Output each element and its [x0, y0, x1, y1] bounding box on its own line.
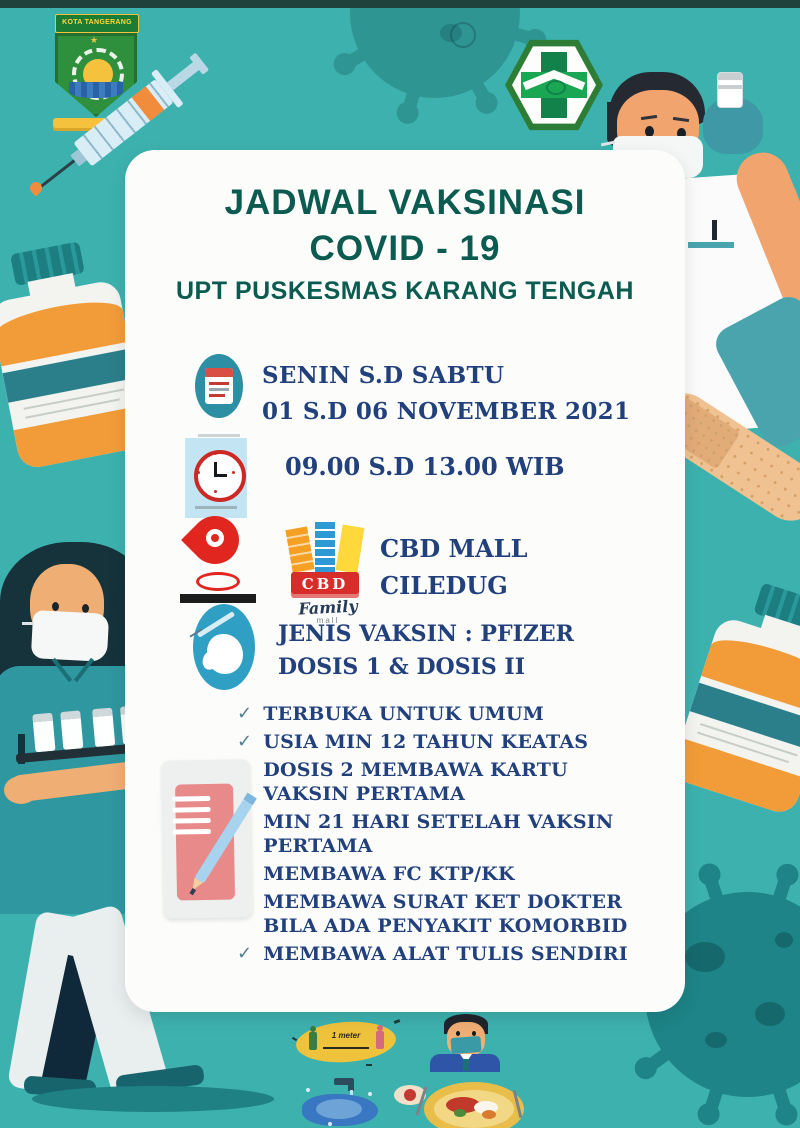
vaccine-doses: DOSIS 1 & DOSIS II [278, 651, 574, 684]
clipboard-line [172, 807, 210, 813]
food-item [482, 1110, 496, 1119]
requirement-text: MIN 21 HARI SETELAH VAKSIN PERTAMA [263, 810, 629, 858]
schedule-days: SENIN S.D SABTU [262, 358, 630, 394]
clipboard-line [173, 818, 211, 824]
check-icon: ✓ [237, 730, 252, 754]
clipboard-line [172, 796, 210, 802]
sauce [404, 1089, 416, 1101]
kota-logo-label: KOTA TANGERANG [55, 14, 139, 33]
requirements-list: ✓ TERBUKA UNTUK UMUM ✓ USIA MIN 12 TAHUN… [237, 702, 629, 970]
schedule-dates: 01 S.D 06 NOVEMBER 2021 [262, 394, 630, 430]
calendar-header [205, 368, 233, 377]
list-item: ✓ MEMBAWA ALAT TULIS SENDIRI [237, 942, 629, 966]
schedule-text: SENIN S.D SABTU 01 S.D 06 NOVEMBER 2021 [262, 358, 630, 430]
cbd-mall-logo: CBD Family mall [285, 520, 371, 628]
pin-base-ring [196, 572, 240, 591]
list-item: ✓ DOSIS 2 MEMBAWA KARTU VAKSIN PERTAMA [237, 758, 629, 806]
list-item: ✓ TERBUKA UNTUK UMUM [237, 702, 629, 726]
clipboard-line [173, 829, 211, 835]
tray-vial [32, 713, 55, 753]
man-tie [463, 1059, 470, 1071]
distance-1-meter-icon: 1 meter [296, 1018, 396, 1066]
requirement-text: USIA MIN 12 TAHUN KEATAS [263, 730, 588, 754]
man-eye [456, 1031, 460, 1036]
calendar-grid [209, 382, 229, 385]
vaccine-vial [717, 72, 743, 108]
vaccine-text: JENIS VAKSIN : PFIZER DOSIS 1 & DOSIS II [278, 618, 574, 684]
clock-caption [195, 506, 237, 509]
requirement-text: MEMBAWA SURAT KET DOKTER BILA ADA PENYAK… [263, 890, 629, 938]
clock-icon [185, 438, 247, 518]
location-name: CBD MALL [380, 530, 528, 567]
nurse-face-mask [31, 610, 109, 662]
title-line-2: COVID - 19 [125, 226, 685, 272]
pocket-pen [712, 220, 717, 240]
floor-shadow [32, 1086, 274, 1112]
center-ring [546, 80, 566, 95]
syringe-glove-icon [193, 604, 255, 690]
cbd-book-orange [285, 526, 314, 573]
location-text: CBD MALL CILEDUG [380, 530, 528, 604]
top-border-strip [0, 0, 800, 8]
check-icon: ✓ [237, 942, 252, 966]
mini-syringe [197, 611, 235, 637]
clock-hand [214, 474, 227, 477]
cbd-book-yellow [336, 525, 365, 574]
tray-vial [60, 710, 83, 750]
man-eye [472, 1031, 476, 1036]
person-figure [376, 1031, 384, 1049]
distance-arrow [323, 1047, 369, 1049]
list-item: ✓ MEMBAWA FC KTP/KK [237, 862, 629, 886]
requirement-text: MEMBAWA FC KTP/KK [263, 862, 514, 886]
hands-highlight [316, 1099, 362, 1119]
checklist-clipboard-icon [162, 759, 253, 919]
calendar-grid [209, 394, 225, 397]
nurse-eye [82, 604, 89, 613]
poster-title: JADWAL VAKSINASI COVID - 19 UPT PUSKESMA… [125, 180, 685, 310]
tray-vial [92, 708, 115, 748]
pin-underline-bar [180, 594, 256, 603]
requirement-text: MEMBAWA ALAT TULIS SENDIRI [263, 942, 628, 966]
requirement-text: DOSIS 2 MEMBAWA KARTU VAKSIN PERTAMA [263, 758, 629, 806]
wash-hands-icon [298, 1078, 388, 1128]
list-item: ✓ MEMBAWA SURAT KET DOKTER BILA ADA PENY… [237, 890, 629, 938]
cbd-brand-box: CBD [291, 572, 359, 598]
calendar-grid [209, 388, 229, 391]
requirement-text: TERBUKA UNTUK UMUM [263, 702, 544, 726]
location-area: CILEDUG [380, 567, 528, 604]
title-line-1: JADWAL VAKSINASI [125, 180, 685, 226]
syringe-needle [39, 159, 76, 188]
vaccine-type: JENIS VAKSIN : PFIZER [278, 618, 574, 651]
wear-mask-icon [430, 1014, 500, 1072]
calendar-icon [195, 354, 243, 418]
location-pin-icon [183, 516, 247, 592]
healthy-food-icon [394, 1082, 524, 1128]
title-line-3: UPT PUSKESMAS KARANG TENGAH [125, 272, 685, 310]
water-waves [69, 82, 123, 98]
bottle-body [668, 615, 800, 817]
person-figure [309, 1032, 317, 1050]
pin-core [211, 534, 219, 542]
mask-strap [22, 622, 34, 625]
list-item: ✓ MIN 21 HARI SETELAH VAKSIN PERTAMA [237, 810, 629, 858]
check-icon: ✓ [237, 702, 252, 726]
cbd-book-blue [315, 522, 335, 572]
speck [366, 1064, 372, 1066]
virus-icon [350, 0, 520, 98]
list-item: ✓ USIA MIN 12 TAHUN KEATAS [237, 730, 629, 754]
food-item [454, 1109, 466, 1117]
speck [394, 1019, 401, 1024]
vaccination-poster: KOTA TANGERANG ★ [0, 0, 800, 1128]
poster-card: JADWAL VAKSINASI COVID - 19 UPT PUSKESMA… [125, 150, 685, 1012]
star-icon: ★ [90, 35, 98, 46]
nurse-eye [52, 602, 59, 611]
divider-dash [198, 434, 240, 437]
man-face-mask [450, 1036, 481, 1054]
coat-pocket [688, 242, 734, 248]
time-text: 09.00 S.D 13.00 WIB [285, 452, 564, 481]
nurse-hand [4, 776, 38, 804]
distance-label: 1 meter [320, 1031, 372, 1040]
